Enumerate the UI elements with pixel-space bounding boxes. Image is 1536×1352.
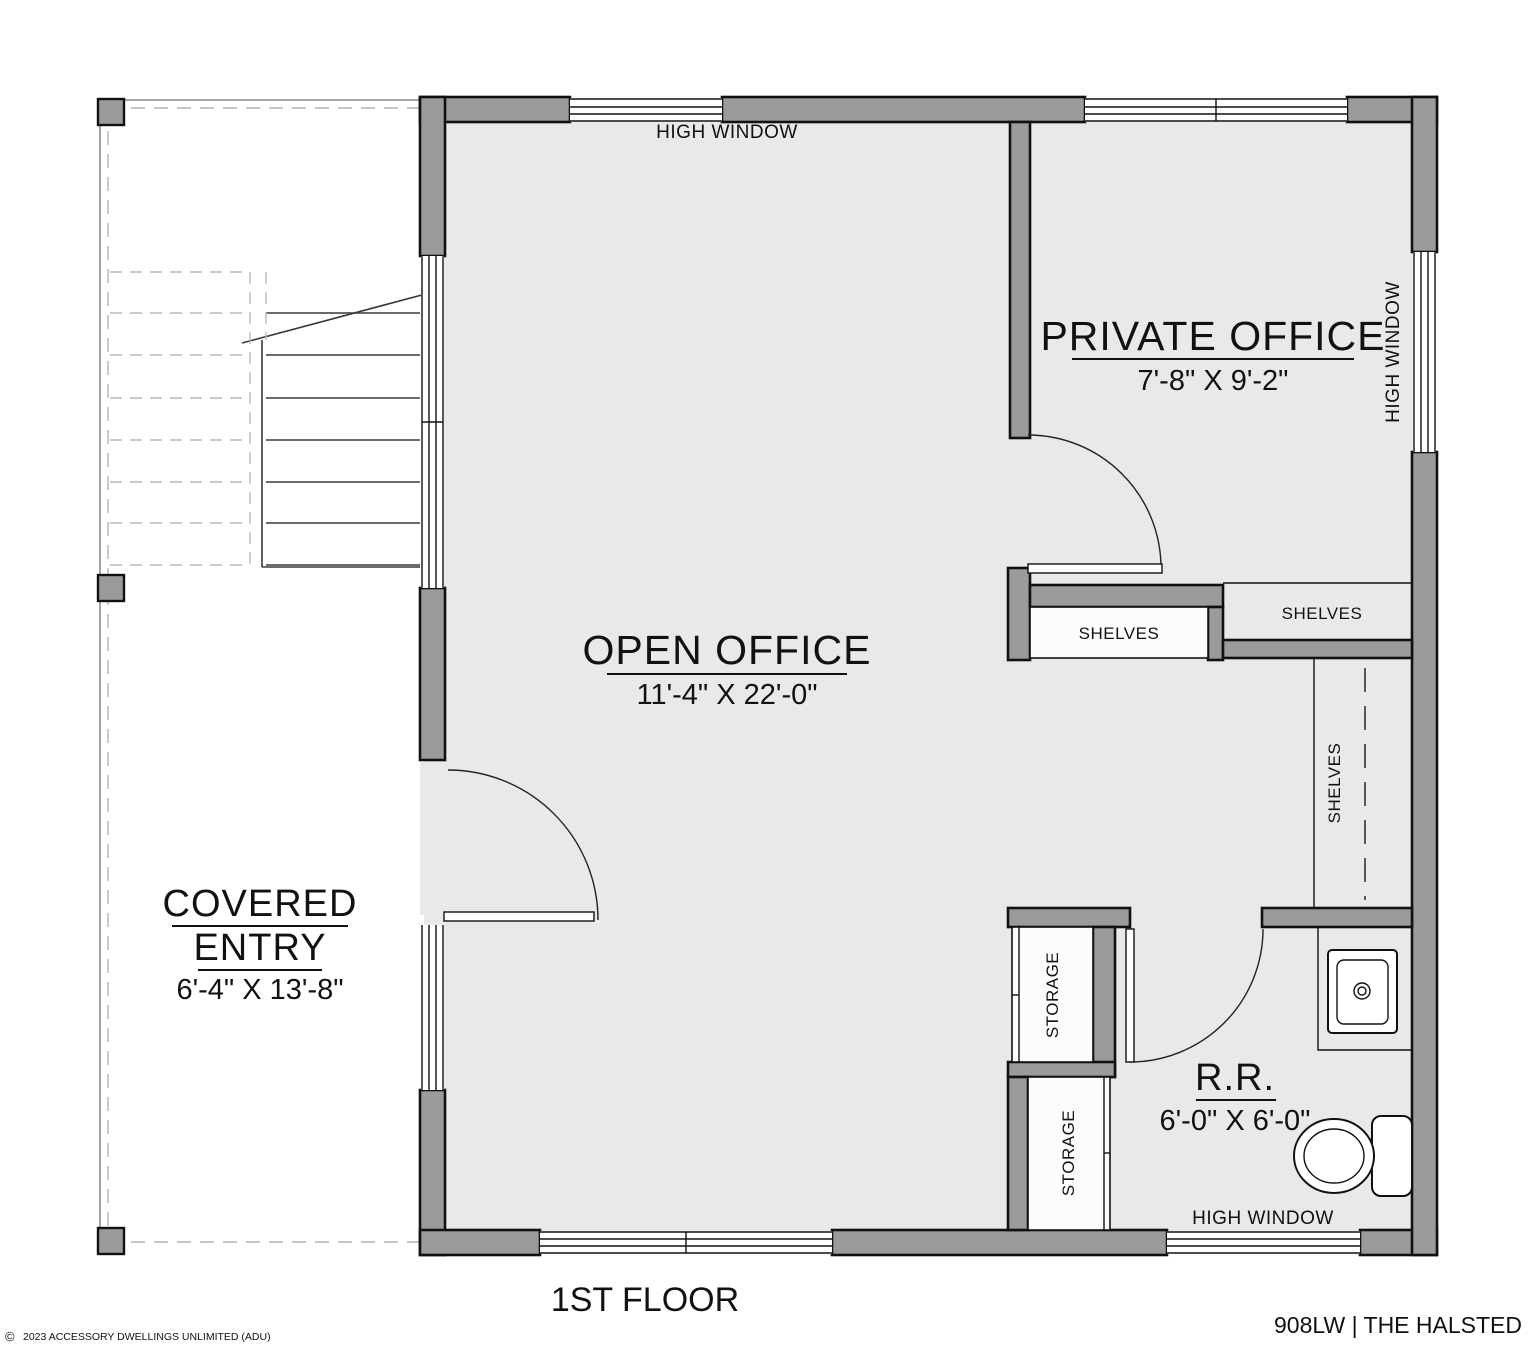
storage-lower-label: STORAGE	[1059, 1110, 1078, 1196]
porch-post-bottom	[98, 1228, 124, 1254]
covered-entry-dims: 6'-4" X 13'-8"	[176, 974, 343, 1006]
wall-top-mid	[722, 97, 1085, 122]
wall-shelf-horizontal	[1030, 585, 1223, 607]
wall-left-mid	[420, 588, 445, 760]
floor-plan-drawing: HIGH WINDOW PRIVATE OFFICE 7'-8" X 9'-2"…	[0, 0, 1536, 1352]
covered-entry-title-line2: ENTRY	[193, 927, 326, 969]
private-office-door-leaf	[1028, 564, 1162, 573]
covered-entry-area	[98, 99, 424, 1254]
shelves-open-side-label: SHELVES	[1079, 624, 1160, 643]
high-window-top-label: HIGH WINDOW	[656, 122, 798, 143]
covered-entry-title-line1: COVERED	[163, 883, 358, 925]
entry-door-leaf	[444, 912, 594, 921]
window-bottom-2	[1167, 1231, 1360, 1254]
wall-bottom-left	[420, 1230, 540, 1255]
open-office-dims: 11'-4" X 22'-0"	[636, 679, 817, 711]
plan-code: 908LW | THE HALSTED	[1274, 1312, 1522, 1338]
wall-storage-left	[1008, 1077, 1028, 1230]
storage-upper-label: STORAGE	[1043, 952, 1062, 1038]
porch-post-middle	[98, 575, 124, 601]
floor-plan-page: HIGH WINDOW PRIVATE OFFICE 7'-8" X 9'-2"…	[0, 0, 1536, 1352]
copyright-icon: ©	[5, 1329, 15, 1344]
window-left-lower	[421, 925, 444, 1090]
private-office-dims: 7'-8" X 9'-2"	[1138, 365, 1289, 397]
wall-closet-vertical	[1208, 607, 1223, 660]
wall-restroom-top-right	[1262, 908, 1412, 927]
shelves-private-side-label: SHELVES	[1282, 604, 1363, 623]
toilet-tank	[1372, 1116, 1412, 1196]
stair-break-line	[242, 292, 433, 343]
wall-divider-stub	[1008, 568, 1030, 660]
high-window-bottom-label: HIGH WINDOW	[1192, 1208, 1334, 1229]
window-top-1	[570, 98, 722, 122]
wall-private-closet-bottom	[1223, 640, 1412, 658]
restroom-door-leaf	[1126, 929, 1134, 1062]
stairs	[110, 272, 433, 567]
wall-office-divider	[1010, 122, 1030, 438]
porch-post-top	[98, 99, 124, 125]
private-office-title: PRIVATE OFFICE	[1040, 313, 1385, 359]
wall-bottom-mid	[832, 1230, 1167, 1255]
floor-title: 1ST FLOOR	[551, 1281, 739, 1319]
restroom-title: R.R.	[1195, 1057, 1275, 1099]
building-floor	[424, 100, 1434, 1250]
wall-storage-mid	[1008, 1062, 1115, 1077]
entry-door-opening	[420, 762, 445, 915]
window-right-high	[1413, 252, 1436, 452]
wall-left-upper	[420, 97, 445, 256]
wall-right-main	[1412, 452, 1437, 1255]
wall-storage-top	[1008, 908, 1130, 927]
restroom-dims: 6'-0" X 6'-0"	[1160, 1105, 1311, 1137]
wall-storage-right	[1093, 927, 1115, 1077]
high-window-right-label: HIGH WINDOW	[1383, 281, 1404, 423]
open-office-title: OPEN OFFICE	[583, 627, 872, 673]
wall-right-upper	[1412, 97, 1437, 252]
shelves-tall-label: SHELVES	[1325, 743, 1344, 824]
copyright-text: 2023 ACCESSORY DWELLINGS UNLIMITED (ADU)	[23, 1331, 271, 1343]
